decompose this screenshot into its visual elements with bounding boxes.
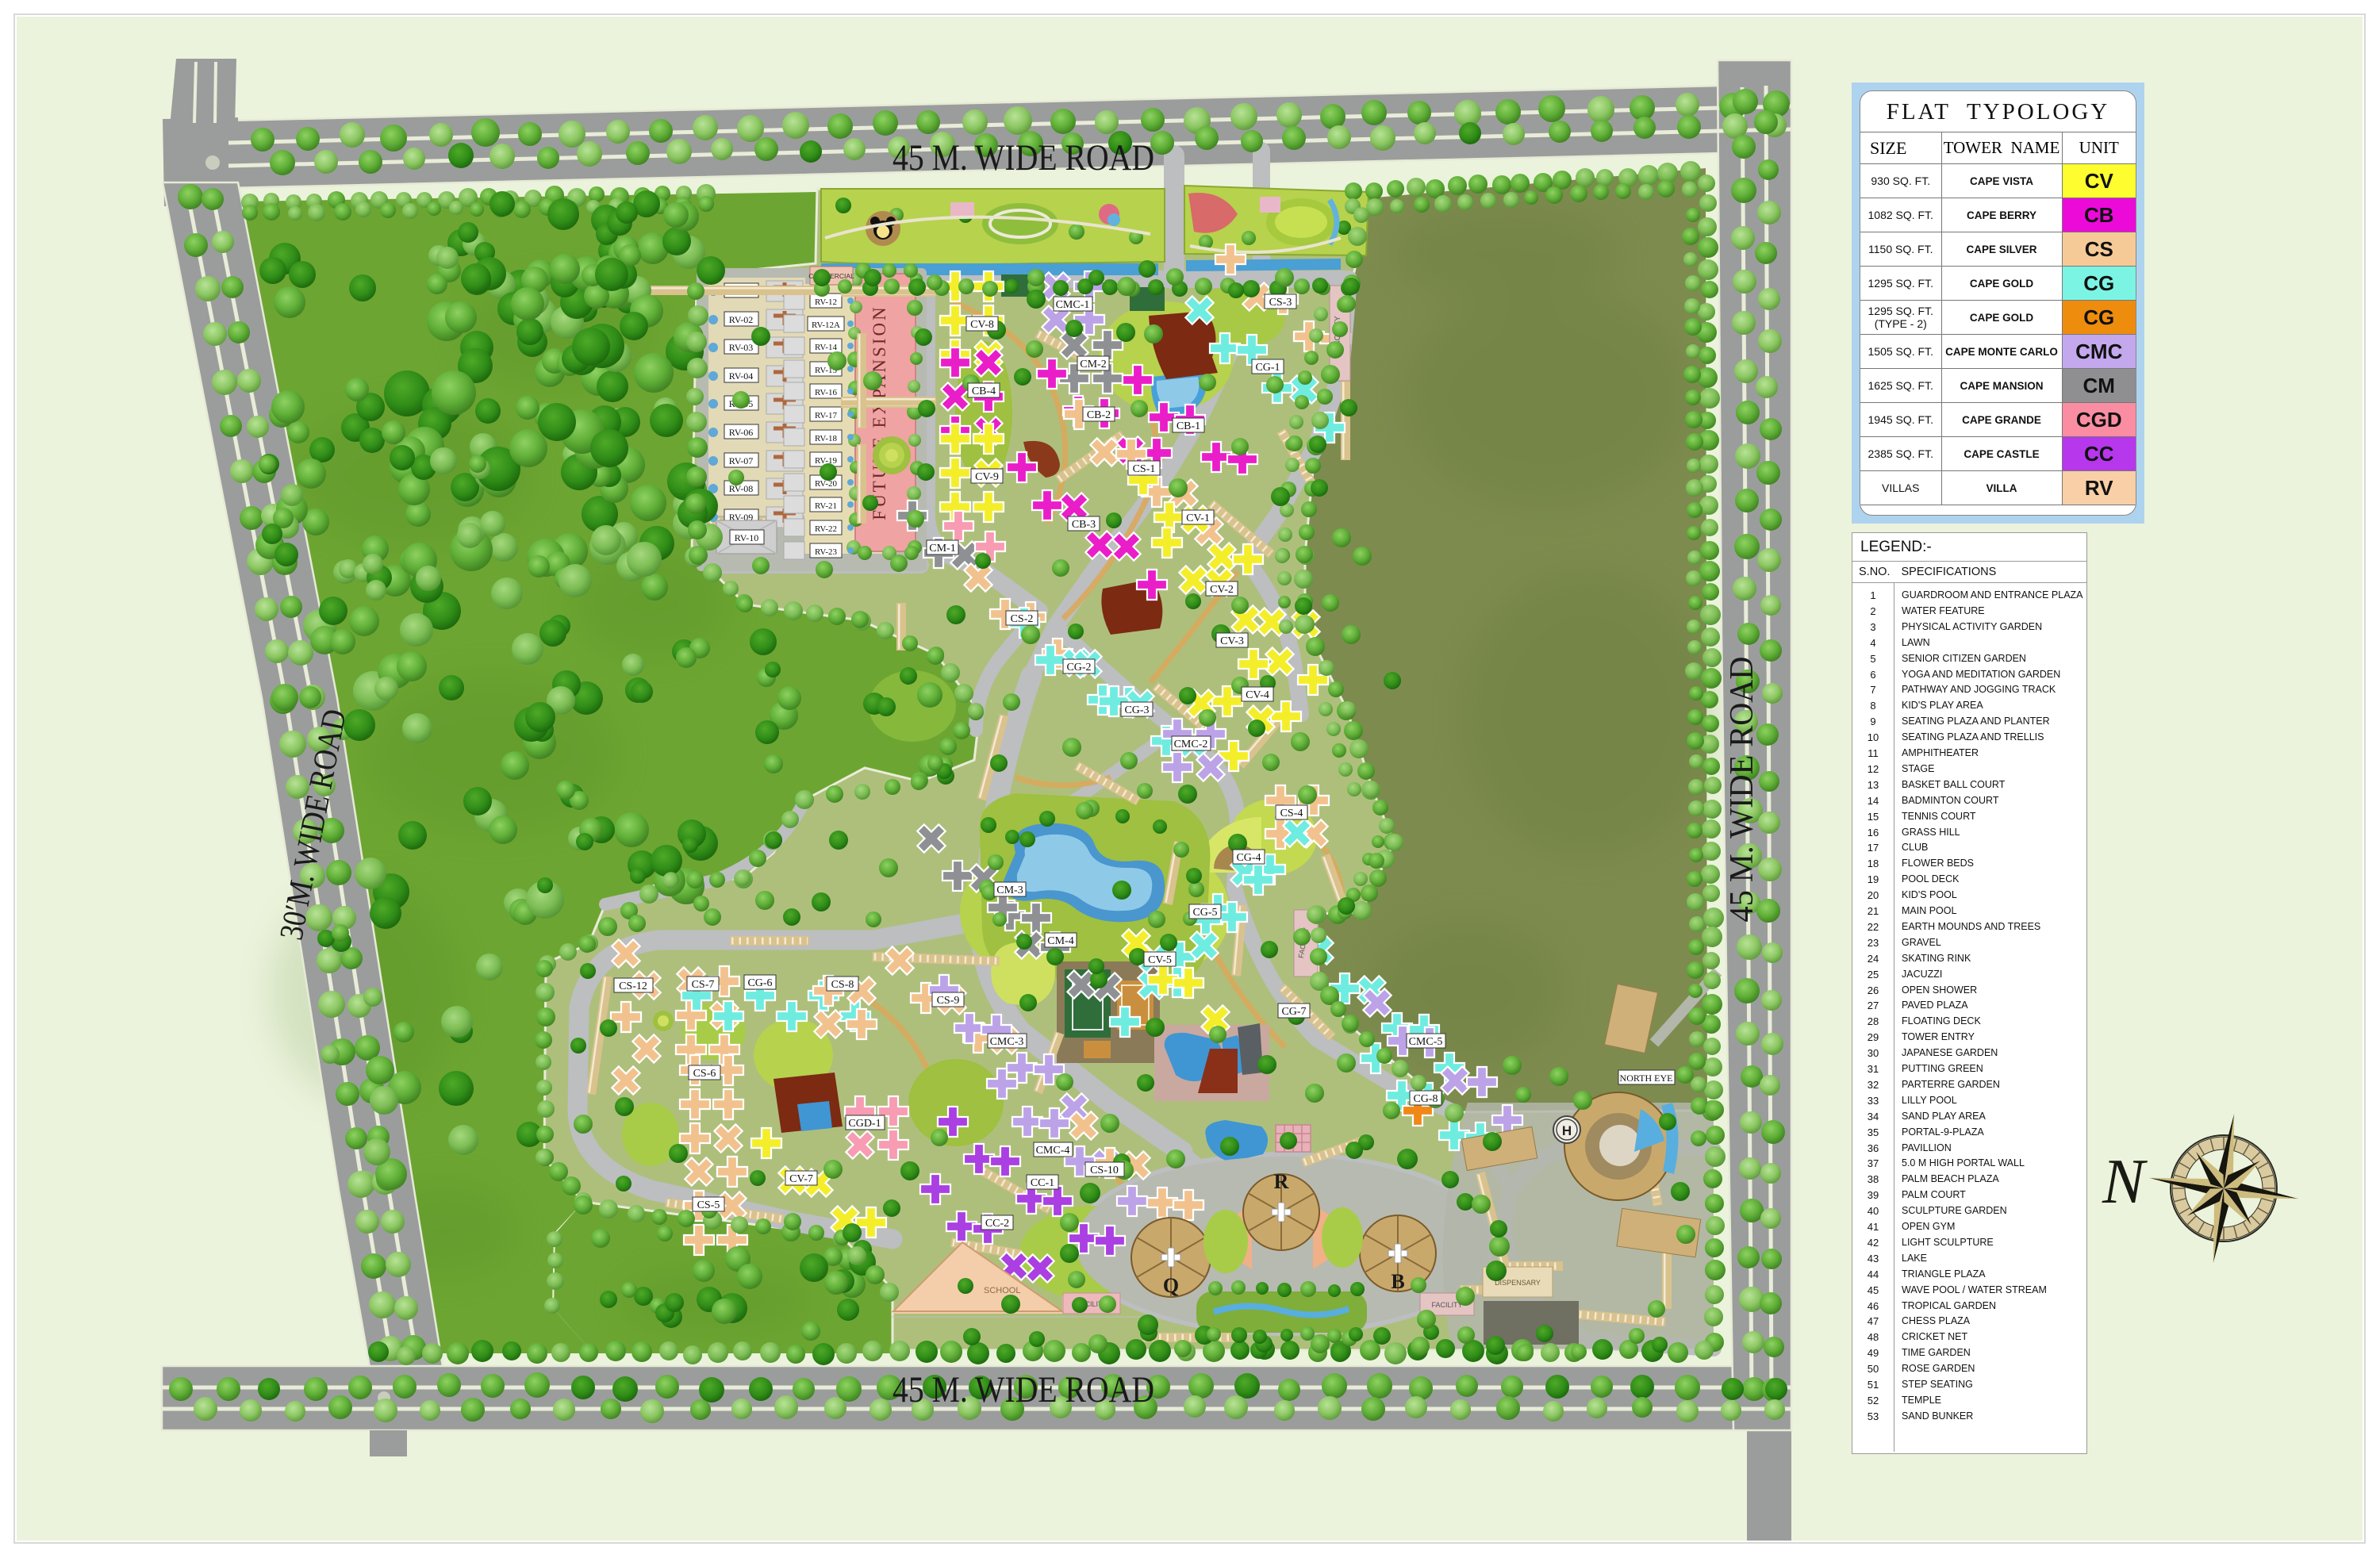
svg-text:RV-21: RV-21 <box>815 501 837 511</box>
svg-text:CMC-1: CMC-1 <box>1056 299 1090 311</box>
svg-text:DISPENSARY: DISPENSARY <box>1495 1279 1541 1287</box>
svg-text:RV-12A: RV-12A <box>812 320 840 330</box>
svg-text:N: N <box>2102 1147 2148 1217</box>
svg-text:CG-7: CG-7 <box>1281 1006 1306 1018</box>
svg-text:RV-20: RV-20 <box>815 479 838 489</box>
svg-text:CMC-4: CMC-4 <box>1036 1145 1070 1157</box>
svg-text:CB-2: CB-2 <box>1087 409 1111 421</box>
svg-text:CM-3: CM-3 <box>996 885 1023 896</box>
svg-text:CV-2: CV-2 <box>1210 584 1234 596</box>
svg-text:45 M. WIDE ROAD: 45 M. WIDE ROAD <box>892 137 1154 178</box>
svg-text:CV-7: CV-7 <box>789 1173 813 1185</box>
svg-text:RV-18: RV-18 <box>815 434 838 443</box>
svg-text:RV-07: RV-07 <box>729 455 754 466</box>
svg-text:CM-1: CM-1 <box>929 543 955 555</box>
svg-text:CS-7: CS-7 <box>692 979 715 991</box>
svg-text:FUTURE EXPANSION: FUTURE EXPANSION <box>869 305 889 520</box>
svg-text:CM-4: CM-4 <box>1047 935 1073 947</box>
svg-text:CS-2: CS-2 <box>1011 613 1034 625</box>
svg-text:CG-5: CG-5 <box>1192 907 1217 919</box>
svg-text:RV-03: RV-03 <box>729 342 754 353</box>
svg-text:Q: Q <box>1163 1274 1179 1297</box>
svg-text:CS-6: CS-6 <box>693 1068 716 1080</box>
svg-text:SCHOOL: SCHOOL <box>984 1286 1020 1295</box>
svg-text:R: R <box>1274 1170 1289 1193</box>
svg-text:RV-22: RV-22 <box>815 524 837 534</box>
svg-text:CG-1: CG-1 <box>1255 362 1280 374</box>
svg-text:CMC-3: CMC-3 <box>990 1036 1024 1048</box>
svg-text:CMC-2: CMC-2 <box>1174 739 1208 750</box>
svg-text:CS-5: CS-5 <box>697 1199 720 1211</box>
svg-text:CS-12: CS-12 <box>619 980 647 992</box>
svg-text:RV-17: RV-17 <box>815 411 838 420</box>
svg-text:CM-2: CM-2 <box>1080 359 1106 370</box>
svg-text:CMC-5: CMC-5 <box>1409 1036 1443 1048</box>
svg-text:NORTH EYE: NORTH EYE <box>1620 1073 1673 1084</box>
svg-text:RV-14: RV-14 <box>815 343 838 352</box>
svg-text:CG-8: CG-8 <box>1413 1093 1438 1105</box>
svg-text:RV-10: RV-10 <box>735 532 759 543</box>
svg-text:CG-4: CG-4 <box>1236 852 1261 864</box>
svg-text:CG-6: CG-6 <box>747 977 772 989</box>
svg-text:CV-4: CV-4 <box>1246 689 1269 701</box>
svg-text:CV-9: CV-9 <box>975 471 999 483</box>
svg-text:CC-2: CC-2 <box>985 1218 1009 1230</box>
svg-text:CS-1: CS-1 <box>1133 463 1156 475</box>
svg-text:RV-04: RV-04 <box>729 370 754 382</box>
svg-text:CC-1: CC-1 <box>1031 1177 1054 1189</box>
svg-text:CS-4: CS-4 <box>1280 808 1303 819</box>
svg-text:CG-2: CG-2 <box>1066 662 1091 673</box>
svg-text:B: B <box>1391 1270 1404 1293</box>
svg-text:45 M. WIDE ROAD: 45 M. WIDE ROAD <box>892 1369 1154 1410</box>
svg-text:RV-16: RV-16 <box>815 388 838 397</box>
svg-text:CB-1: CB-1 <box>1177 420 1200 432</box>
svg-text:CS-9: CS-9 <box>937 995 960 1007</box>
svg-text:RV-23: RV-23 <box>815 547 838 557</box>
svg-text:H: H <box>1562 1123 1572 1138</box>
svg-text:CV-8: CV-8 <box>970 319 994 331</box>
svg-text:RV-02: RV-02 <box>729 314 754 325</box>
svg-text:CG-3: CG-3 <box>1124 704 1149 716</box>
svg-text:CB-4: CB-4 <box>972 386 996 397</box>
svg-text:45 M. WIDE ROAD: 45 M. WIDE ROAD <box>1724 657 1760 923</box>
svg-text:CV-5: CV-5 <box>1148 954 1172 966</box>
svg-text:RV-08: RV-08 <box>729 483 754 494</box>
svg-text:CS-8: CS-8 <box>831 979 854 991</box>
svg-text:RV-12: RV-12 <box>815 297 837 307</box>
svg-text:CS-10: CS-10 <box>1090 1165 1119 1176</box>
svg-text:CGD-1: CGD-1 <box>848 1118 881 1130</box>
svg-text:CS-3: CS-3 <box>1269 297 1292 309</box>
svg-text:CV-1: CV-1 <box>1186 512 1210 524</box>
svg-text:CV-3: CV-3 <box>1220 635 1244 647</box>
svg-text:CB-3: CB-3 <box>1072 519 1096 531</box>
svg-text:RV-06: RV-06 <box>729 427 754 438</box>
